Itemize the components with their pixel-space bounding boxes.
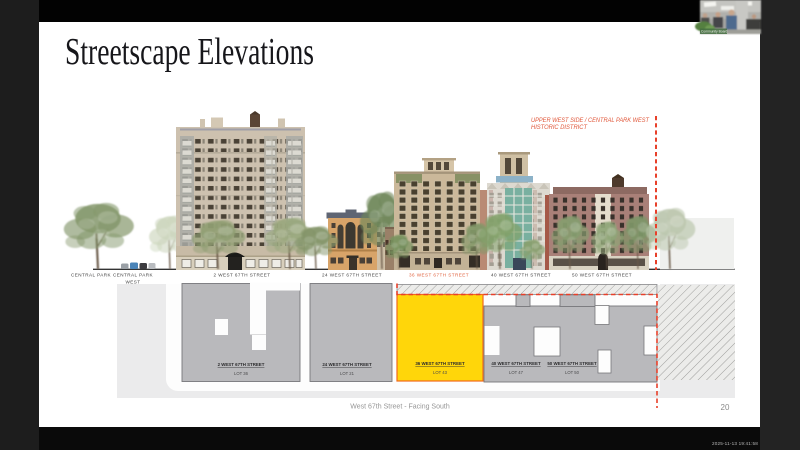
svg-text:2025-11-13 19:41:58: 2025-11-13 19:41:58 bbox=[712, 441, 758, 446]
svg-text:20: 20 bbox=[721, 403, 730, 412]
svg-text:Streetscape Elevations: Streetscape Elevations bbox=[65, 31, 314, 73]
svg-text:LOT 43: LOT 43 bbox=[433, 370, 448, 375]
svg-text:36 WEST 67TH STREET: 36 WEST 67TH STREET bbox=[409, 273, 469, 278]
svg-text:LOT 50: LOT 50 bbox=[565, 370, 580, 375]
svg-text:50 WEST 67TH STREET: 50 WEST 67TH STREET bbox=[572, 273, 632, 278]
svg-text:40 WEST 67TH STREET: 40 WEST 67TH STREET bbox=[491, 361, 541, 366]
svg-text:WEST: WEST bbox=[125, 280, 140, 285]
svg-text:CENTRAL PARK: CENTRAL PARK bbox=[113, 273, 154, 278]
svg-text:UPPER WEST SIDE / CENTRAL PARK: UPPER WEST SIDE / CENTRAL PARK WEST bbox=[531, 117, 650, 124]
svg-text:LOT 47: LOT 47 bbox=[509, 370, 524, 375]
svg-text:50 WEST 67TH STREET: 50 WEST 67TH STREET bbox=[547, 361, 597, 366]
svg-text:2 WEST 67TH STREET: 2 WEST 67TH STREET bbox=[213, 273, 270, 278]
svg-text:2 WEST 67TH STREET: 2 WEST 67TH STREET bbox=[218, 362, 265, 367]
svg-text:LOT 21: LOT 21 bbox=[340, 371, 355, 376]
svg-text:LOT 36: LOT 36 bbox=[234, 371, 249, 376]
svg-text:40 WEST 67TH STREET: 40 WEST 67TH STREET bbox=[491, 273, 551, 278]
svg-text:36 WEST 67TH STREET: 36 WEST 67TH STREET bbox=[415, 361, 465, 366]
svg-text:Community Board: Community Board bbox=[701, 30, 728, 34]
svg-text:24 WEST 67TH STREET: 24 WEST 67TH STREET bbox=[322, 273, 382, 278]
svg-text:West 67th Street - Facing Sout: West 67th Street - Facing South bbox=[350, 404, 450, 411]
svg-text:CENTRAL PARK: CENTRAL PARK bbox=[71, 273, 112, 278]
svg-text:HISTORIC DISTRICT: HISTORIC DISTRICT bbox=[531, 124, 588, 131]
svg-text:24 WEST 67TH STREET: 24 WEST 67TH STREET bbox=[322, 362, 372, 367]
